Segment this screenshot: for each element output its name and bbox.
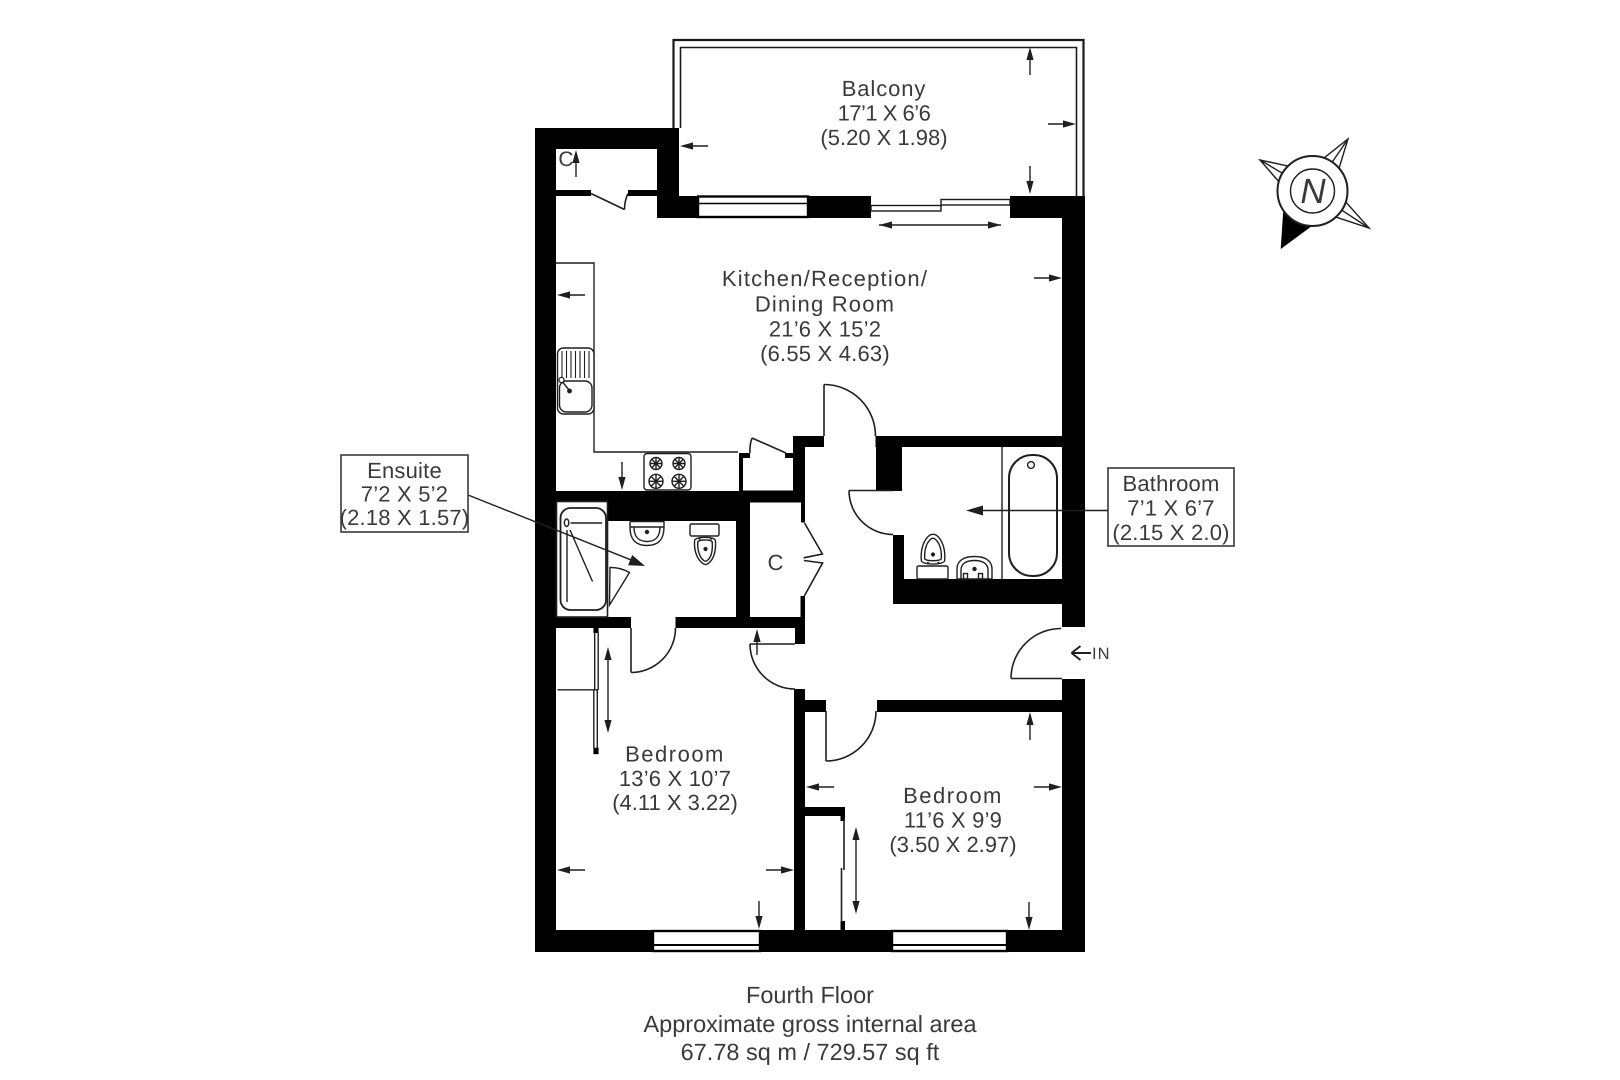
- svg-text:Fourth Floor: Fourth Floor: [746, 982, 874, 1008]
- svg-text:Bedroom: Bedroom: [625, 742, 725, 767]
- svg-text:Kitchen/Reception/: Kitchen/Reception/: [722, 266, 928, 291]
- svg-text:67.78 sq m / 729.57 sq ft: 67.78 sq m / 729.57 sq ft: [681, 1039, 940, 1065]
- svg-text:(4.11 X 3.22): (4.11 X 3.22): [612, 790, 738, 815]
- svg-text:Balcony: Balcony: [842, 76, 927, 101]
- svg-text:N: N: [1300, 172, 1326, 211]
- svg-text:Bedroom: Bedroom: [903, 783, 1003, 808]
- svg-text:7’1 X 6’7: 7’1 X 6’7: [1127, 496, 1214, 521]
- svg-text:(5.20 X 1.98): (5.20 X 1.98): [820, 125, 947, 150]
- svg-text:(3.50 X 2.97): (3.50 X 2.97): [889, 832, 1016, 857]
- svg-text:11’6 X 9’9: 11’6 X 9’9: [904, 808, 1002, 833]
- svg-text:Bathroom: Bathroom: [1123, 471, 1220, 496]
- svg-text:Dining Room: Dining Room: [755, 292, 895, 317]
- svg-text:21’6 X 15’2: 21’6 X 15’2: [769, 317, 881, 342]
- svg-text:IN: IN: [1092, 645, 1111, 663]
- svg-text:Ensuite: Ensuite: [367, 458, 442, 483]
- svg-text:(2.15 X 2.0): (2.15 X 2.0): [1112, 520, 1229, 545]
- svg-text:7’2 X 5’2: 7’2 X 5’2: [361, 482, 448, 507]
- svg-text:(6.55 X 4.63): (6.55 X 4.63): [760, 341, 890, 366]
- svg-text:C: C: [767, 550, 783, 575]
- svg-text:Approximate gross internal are: Approximate gross internal area: [643, 1011, 977, 1037]
- svg-text:C: C: [558, 148, 573, 171]
- svg-text:13’6 X 10’7: 13’6 X 10’7: [619, 766, 731, 791]
- svg-text:(2.18 X 1.57): (2.18 X 1.57): [340, 505, 470, 530]
- svg-text:17’1 X 6’6: 17’1 X 6’6: [838, 101, 931, 126]
